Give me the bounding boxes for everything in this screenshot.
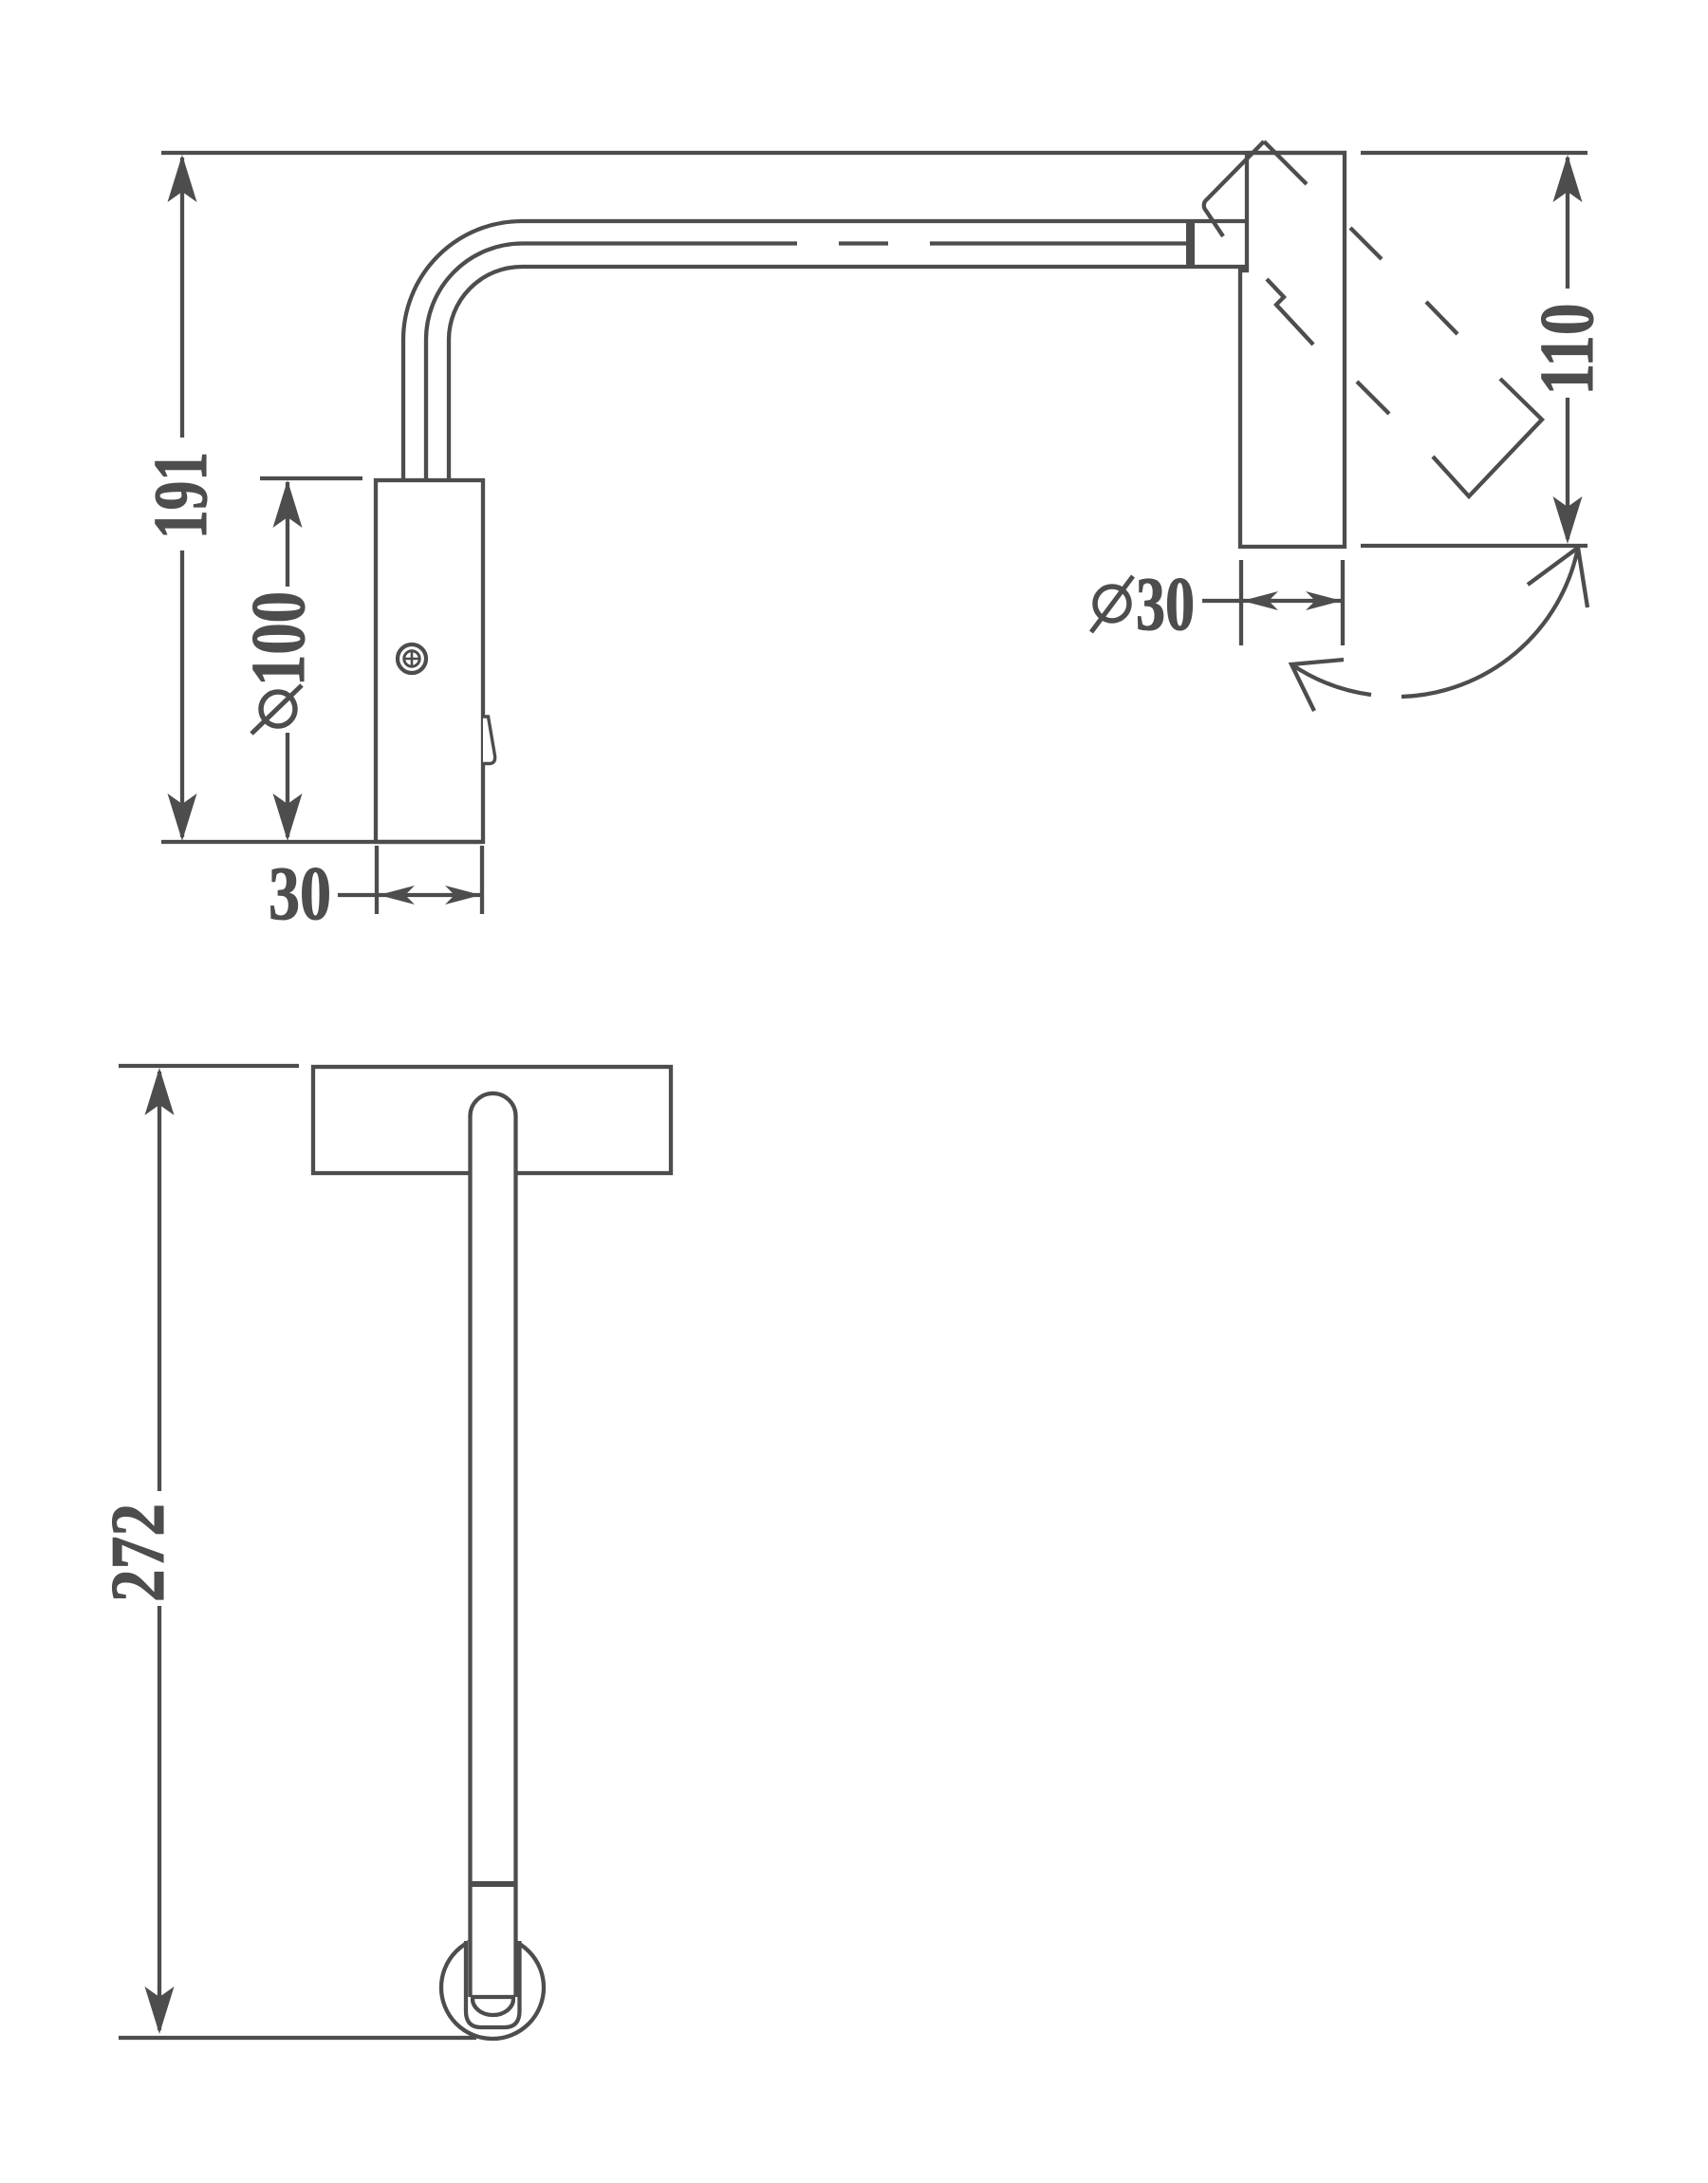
svg-text:110: 110 xyxy=(1526,304,1609,396)
svg-text:30: 30 xyxy=(269,852,331,936)
svg-text:191: 191 xyxy=(139,452,223,539)
svg-text:272: 272 xyxy=(97,1503,180,1602)
svg-text:100: 100 xyxy=(237,591,321,686)
svg-text:30: 30 xyxy=(1136,563,1195,646)
